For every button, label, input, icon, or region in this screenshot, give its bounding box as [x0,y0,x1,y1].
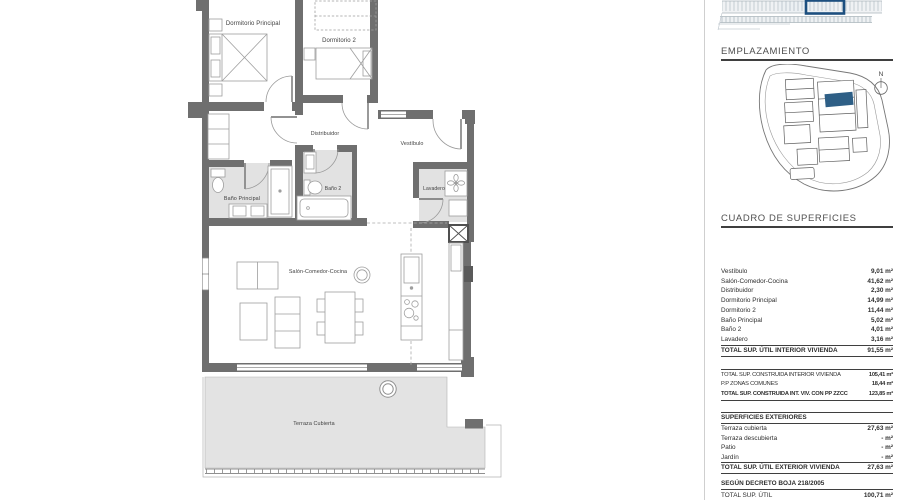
bathtub [297,196,351,220]
toilet-principal [211,169,225,193]
shaft-icon [449,225,468,242]
svg-text:N: N [879,71,884,78]
table-row: Baño 24,01 m² [721,325,893,335]
decreto-section: SEGÚN DECRETO BOJA 218/2005 TOTAL SUP. Ú… [721,479,893,500]
chaise [240,303,267,340]
surface-table: Vestíbulo9,01 m² Salón-Comedor-Cocina41,… [721,267,893,500]
room-label-bano2: Baño 2 [325,186,342,192]
room-label-distribuidor: Distribuidor [311,131,340,137]
floor-plan: Dormitorio Principal Dormitorio 2 Distri… [180,0,520,500]
exteriores-section: SUPERFICIES EXTERIORES Terraza cubierta2… [721,412,893,474]
table-row: Vestíbulo9,01 m² [721,267,893,277]
vanity-bano2 [304,152,316,173]
room-label-dorm-principal: Dormitorio Principal [226,21,280,27]
cuadro-title: CUADRO DE SUPERFICIES [721,213,893,224]
living-lamp-icon [354,267,370,283]
washer-fan-icon [445,171,467,196]
table-row: TOTAL SUP. CONSTRUIDA INT. VIV. CON PP Z… [721,390,893,400]
table-row: Dormitorio Principal14,99 m² [721,296,893,306]
interior-total-row: TOTAL SUP. ÚTIL INTERIOR VIVIENDA91,55 m… [721,345,893,357]
toilet-bano2 [304,180,322,195]
vanity-principal [229,204,267,218]
table-row: Baño Principal5,02 m² [721,316,893,326]
emplazamiento-title: EMPLAZAMIENTO [721,46,893,57]
table-row: Lavadero3,16 m² [721,335,893,345]
bed-principal [209,34,267,81]
interior-section: Vestíbulo9,01 m² Salón-Comedor-Cocina41,… [721,267,893,357]
terrace-lamp-icon [380,381,396,397]
room-label-salon: Salón-Comedor-Cocina [289,269,347,275]
room-label-bano-principal: Baño Principal [224,196,260,202]
kitchen-island [401,254,422,340]
bed-dorm2 [316,48,372,79]
construida-section: TOTAL SUP. CONSTRUIDA INTERIOR VIVIENDA1… [721,369,893,402]
decreto-header: SEGÚN DECRETO BOJA 218/2005 [721,479,893,490]
compass-icon: N [875,71,888,94]
table-row: Jardín- m² [721,453,893,462]
room-label-vestibulo: Vestíbulo [400,141,423,147]
site-buildings [781,76,870,180]
wardrobe-dorm2 [315,1,376,30]
room-label-lavadero: Lavadero [423,186,445,192]
site-map: N [721,64,893,210]
table-row: TOTAL SUP. CONSTRUIDA INTERIOR VIVIENDA1… [721,371,893,381]
dining-set [317,292,363,343]
sofa [275,297,300,348]
decreto-total-row: TOTAL SUP. ÚTIL100,71 m² [721,490,893,500]
table-row: Patio- m² [721,443,893,452]
kitchen-counter [449,243,463,360]
table-row: Salón-Comedor-Cocina41,62 m² [721,277,893,287]
table-row: Terraza cubierta27,63 m² [721,424,893,433]
emplazamiento-rule [721,59,893,61]
table-row: Distribuidor2,30 m² [721,286,893,296]
sideboard [237,262,278,289]
exteriores-header: SUPERFICIES EXTERIORES [721,412,893,424]
elevation-thumbnail [713,0,895,32]
table-row: P.P ZONAS COMUNES18,44 m² [721,380,893,390]
room-label-dorm2: Dormitorio 2 [322,38,356,44]
terrace [203,377,501,477]
room-label-terraza: Terraza Cubierta [293,421,334,427]
shower [268,166,292,217]
cuadro-rule [721,226,893,228]
wardrobe-dressing [208,114,229,159]
plan-sheet: Dormitorio Principal Dormitorio 2 Distri… [0,0,899,500]
site-highlight [825,92,854,107]
sidebar-divider [704,0,705,500]
exterior-total-row: TOTAL SUP. ÚTIL EXTERIOR VIVIENDA27,63 m… [721,462,893,474]
table-row: Dormitorio 211,44 m² [721,306,893,316]
table-row: Terraza descubierta- m² [721,434,893,443]
